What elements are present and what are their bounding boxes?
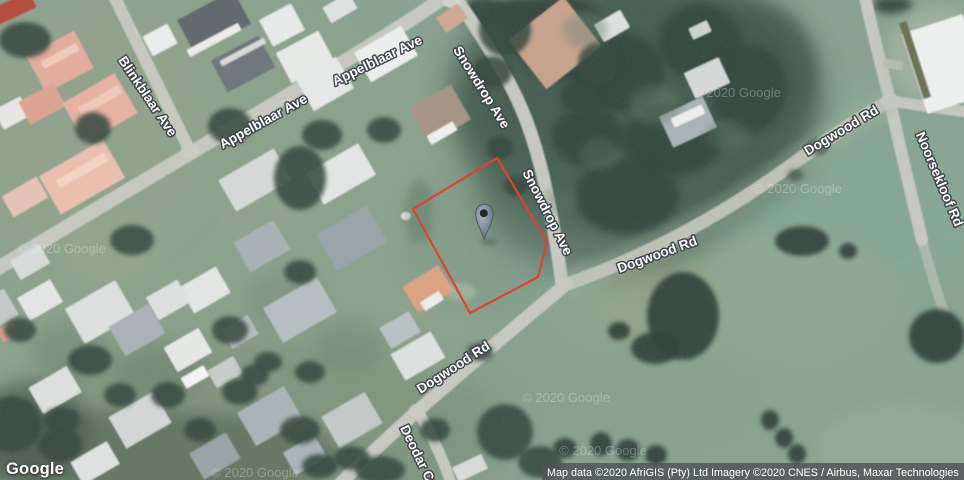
svg-text:Map data ©2020 AfriGIS (Pty) L: Map data ©2020 AfriGIS (Pty) Ltd Imagery… bbox=[547, 467, 959, 479]
svg-text:© 2020 Google: © 2020 Google bbox=[693, 85, 781, 100]
svg-text:Google: Google bbox=[6, 460, 64, 478]
svg-text:© 2020 Google: © 2020 Google bbox=[754, 181, 842, 196]
svg-text:© 2020 Google: © 2020 Google bbox=[522, 390, 610, 405]
svg-text:© 2020 Google: © 2020 Google bbox=[18, 241, 106, 256]
svg-text:© 2020 Google: © 2020 Google bbox=[211, 465, 299, 480]
svg-text:© 2020 Google: © 2020 Google bbox=[559, 443, 647, 458]
